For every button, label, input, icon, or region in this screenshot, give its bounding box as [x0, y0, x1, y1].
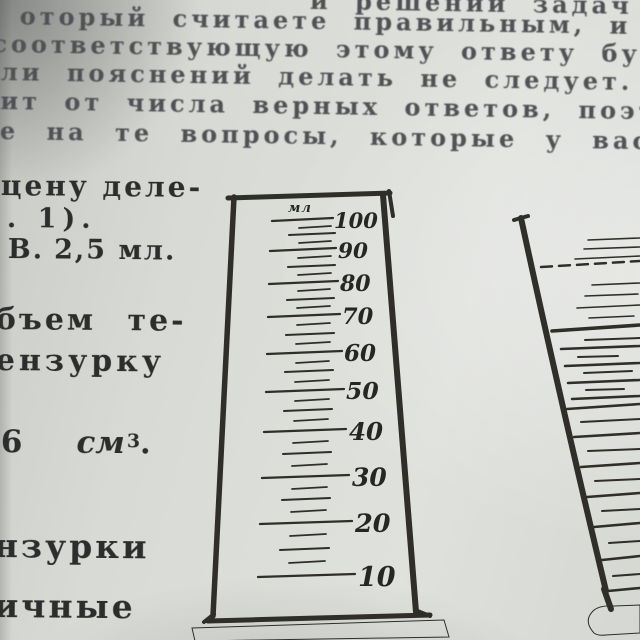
liquid-surface-line	[552, 325, 640, 331]
right-cylinder-figure	[514, 216, 640, 635]
cylinder-rim-lip	[389, 191, 393, 216]
faint-mid-ticks	[577, 283, 640, 318]
right-cylinder-base	[588, 605, 640, 635]
scale-label-60: 60	[344, 340, 376, 367]
scale-label-30: 30	[352, 463, 387, 492]
unit-label-ml: мл	[288, 201, 312, 216]
scale-label-50: 50	[346, 377, 379, 405]
left-cylinder-figure: мл 100 90 80 70 60 50 40 30 20 10	[192, 191, 449, 640]
scale-label-100: 100	[334, 208, 378, 233]
faint-upper-ticks	[575, 238, 640, 259]
scale-label-20: 20	[354, 509, 391, 539]
cylinder-left-wall	[213, 197, 234, 616]
scale-label-70: 70	[342, 304, 374, 330]
liquid-ticks-long	[561, 346, 640, 591]
cylinder-base	[192, 620, 449, 640]
scale-label-40: 40	[349, 417, 383, 446]
cylinder-rim	[228, 193, 390, 198]
cylinder-foot-line	[208, 615, 430, 621]
figure-measuring-cylinders: мл 100 90 80 70 60 50 40 30 20 10	[0, 0, 640, 640]
liquid-ticks-short	[578, 338, 640, 576]
minor-ticks-short	[289, 226, 331, 563]
right-cylinder-wall	[521, 218, 606, 591]
scale-label-90: 90	[338, 239, 368, 264]
cylinder-right-wall	[383, 195, 416, 612]
scale-label-80: 80	[339, 271, 371, 297]
dashed-level-line	[541, 261, 640, 267]
scale-label-10: 10	[358, 562, 396, 593]
